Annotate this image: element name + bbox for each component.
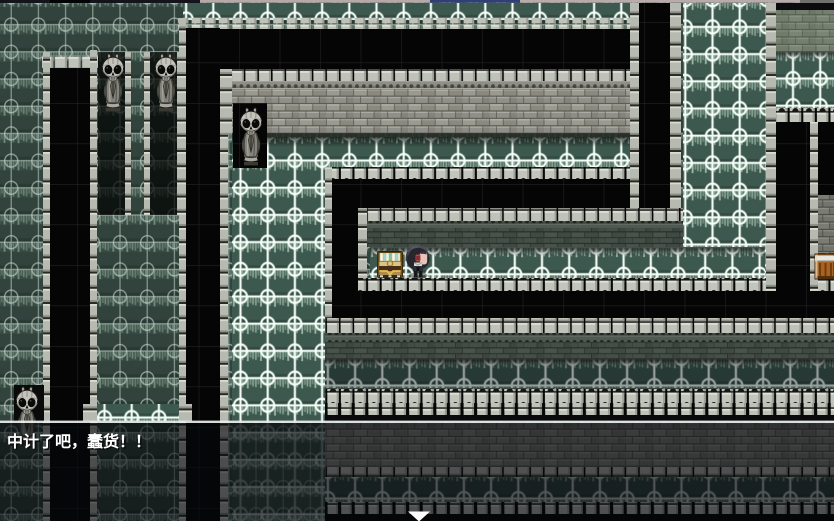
svg-text:中计了吧，蠢货！！: 中计了吧，蠢货！！ <box>7 433 151 451</box>
